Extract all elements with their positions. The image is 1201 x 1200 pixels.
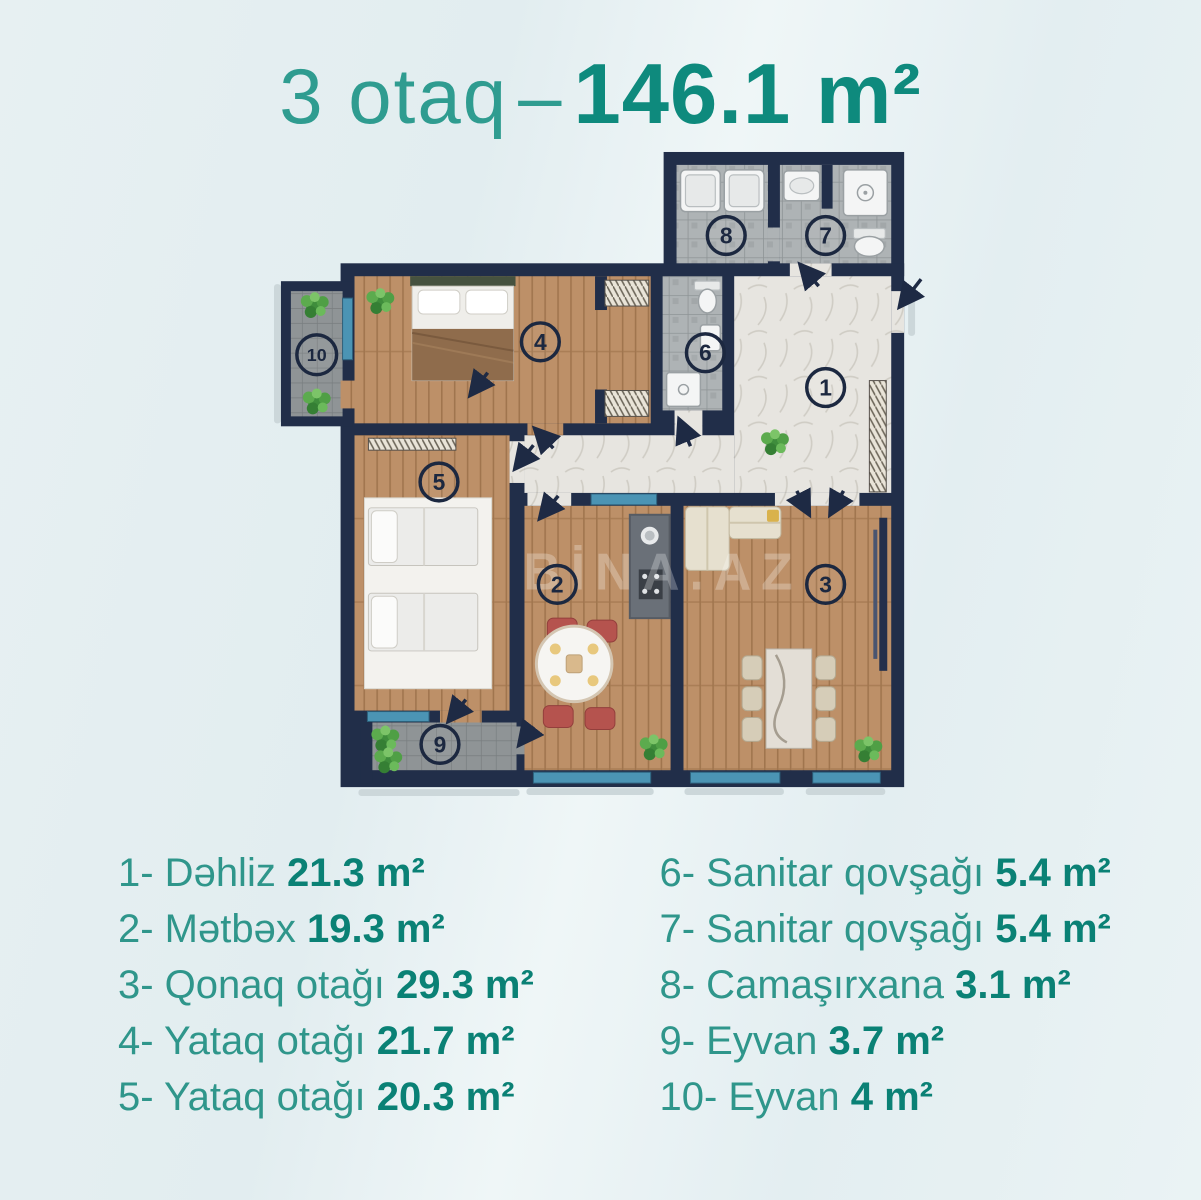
tv-unit xyxy=(873,518,887,671)
window-living-right xyxy=(812,772,880,783)
legend-room-area: 19.3 m² xyxy=(307,907,445,951)
legend-item: 1- Dəhliz 21.3 m² xyxy=(118,845,660,901)
legend-item: 4- Yataq otağı 21.7 m² xyxy=(118,1013,660,1069)
legend-room-area: 29.3 m² xyxy=(396,963,534,1007)
legend-item: 6- Sanitar qovşağı 5.4 m² xyxy=(660,845,1201,901)
hallway-bench xyxy=(869,381,886,492)
legend-room-name: 4- Yataq otağı xyxy=(118,1019,377,1063)
legend-column-left: 1- Dəhliz 21.3 m²2- Mətbəx 19.3 m²3- Qon… xyxy=(118,845,660,1125)
floor-plan-svg: BİNA.AZ 12345678910 xyxy=(273,143,929,811)
legend-room-name: 1- Dəhliz xyxy=(118,851,287,895)
legend-item: 10- Eyvan 4 m² xyxy=(660,1069,1201,1125)
window-living-left xyxy=(690,772,779,783)
room-marker-number: 7 xyxy=(819,222,832,248)
bedroom4-bed xyxy=(410,276,515,380)
wardrobe-top xyxy=(604,280,648,306)
legend-room-area: 5.4 m² xyxy=(995,851,1111,895)
legend-item: 5- Yataq otağı 20.3 m² xyxy=(118,1069,660,1125)
living-dining-set xyxy=(742,649,835,748)
room-marker-number: 3 xyxy=(819,571,832,597)
legend-column-right: 6- Sanitar qovşağı 5.4 m²7- Sanitar qovş… xyxy=(660,845,1201,1125)
room-legend: 1- Dəhliz 21.3 m²2- Mətbəx 19.3 m²3- Qon… xyxy=(0,845,1201,1125)
legend-room-name: 8- Camaşırxana xyxy=(660,963,956,1007)
legend-room-name: 6- Sanitar qovşağı xyxy=(660,851,996,895)
legend-item: 8- Camaşırxana 3.1 m² xyxy=(660,957,1201,1013)
legend-room-name: 9- Eyvan xyxy=(660,1019,829,1063)
window-kitchen-internal xyxy=(591,494,657,505)
legend-room-area: 21.3 m² xyxy=(287,851,425,895)
room-marker-number: 10 xyxy=(306,345,326,365)
legend-room-area: 21.7 m² xyxy=(377,1019,515,1063)
legend-room-name: 10- Eyvan xyxy=(660,1075,851,1119)
wardrobe-bottom xyxy=(604,391,648,417)
bedroom5-beds xyxy=(364,498,491,689)
floor-corridor xyxy=(524,435,734,493)
legend-room-area: 5.4 m² xyxy=(995,907,1111,951)
legend-room-name: 3- Qonaq otağı xyxy=(118,963,396,1007)
bedroom5-radiator xyxy=(368,438,455,450)
legend-room-area: 20.3 m² xyxy=(377,1075,515,1119)
room-marker-number: 8 xyxy=(719,222,732,248)
legend-room-name: 5- Yataq otağı xyxy=(118,1075,377,1119)
page-title: 3 otaq–146.1 m² xyxy=(0,0,1201,137)
legend-room-area: 3.7 m² xyxy=(828,1019,944,1063)
room-marker-number: 9 xyxy=(433,731,446,757)
title-dash: – xyxy=(518,52,563,140)
legend-room-area: 3.1 m² xyxy=(955,963,1071,1007)
legend-item: 2- Mətbəx 19.3 m² xyxy=(118,901,660,957)
floor-plan-figure: BİNA.AZ 12345678910 xyxy=(0,143,1201,811)
legend-room-area: 4 m² xyxy=(851,1075,933,1119)
room-marker-number: 6 xyxy=(699,340,712,366)
title-area: 146.1 m² xyxy=(574,47,922,142)
floorplan-poster: 3 otaq–146.1 m² xyxy=(0,0,1201,1200)
legend-item: 3- Qonaq otağı 29.3 m² xyxy=(118,957,660,1013)
window-balcony10 xyxy=(342,298,352,360)
legend-room-name: 2- Mətbəx xyxy=(118,907,307,951)
window-kitchen xyxy=(533,772,650,783)
room-marker-number: 5 xyxy=(432,469,445,495)
legend-room-name: 7- Sanitar qovşağı xyxy=(660,907,996,951)
room-marker-number: 4 xyxy=(534,329,547,355)
legend-item: 7- Sanitar qovşağı 5.4 m² xyxy=(660,901,1201,957)
room-marker-number: 1 xyxy=(819,374,832,400)
room-marker-number: 2 xyxy=(550,571,563,597)
window-bedroom5 xyxy=(367,712,429,722)
legend-item: 9- Eyvan 3.7 m² xyxy=(660,1013,1201,1069)
title-rooms: 3 otaq xyxy=(279,52,508,140)
